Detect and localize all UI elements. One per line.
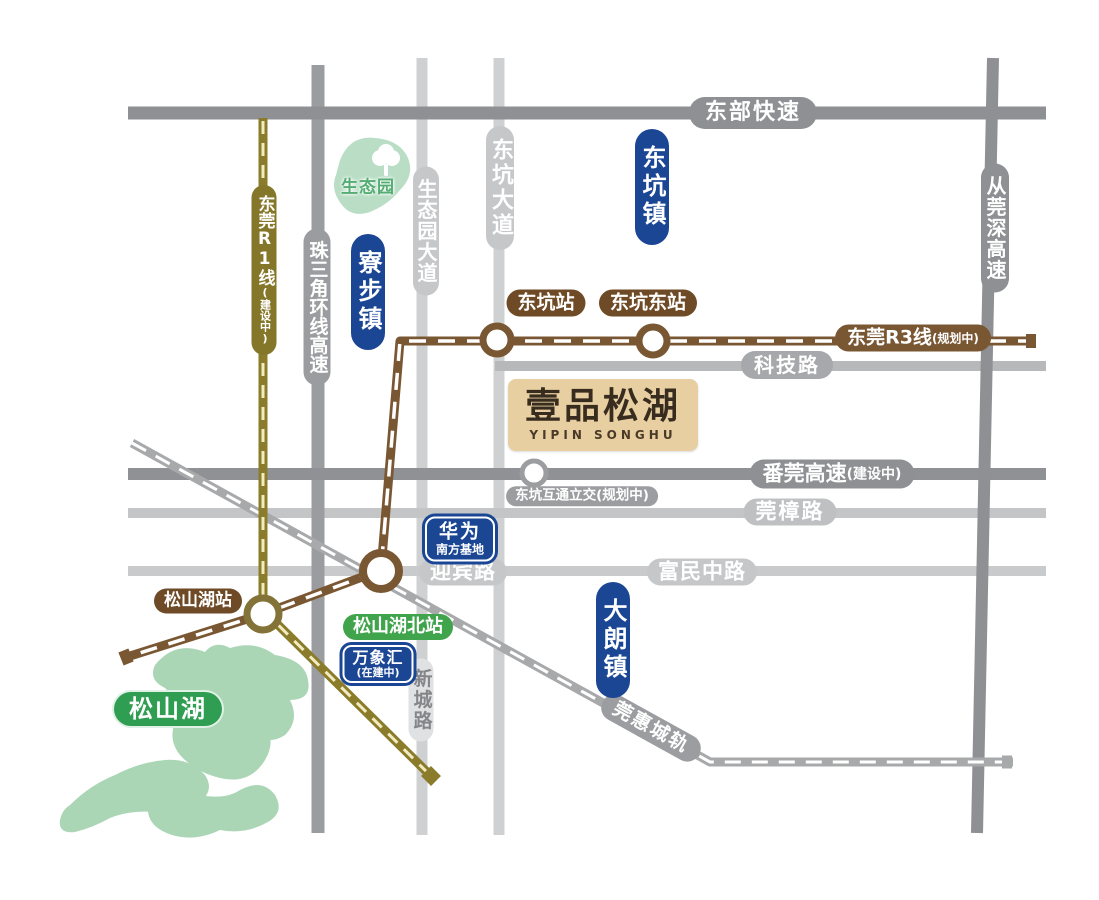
mixc-status: (在建中) <box>356 667 399 678</box>
project-title: 壹品松湖 <box>525 389 681 425</box>
rail-label-r3-line: 东莞R3线(规划中) <box>835 325 991 352</box>
station-badge-dongkeng-east: 东坑东站 <box>599 290 697 317</box>
poi-label-eco-park: 生态园 <box>341 180 395 197</box>
road-label-dongkeng-avenue: 东坑大道 <box>486 126 514 250</box>
r3-name: 东莞R3线 <box>847 329 932 348</box>
town-badge-dongkeng: 东坑镇 <box>635 129 669 245</box>
r3-junction-circle <box>363 553 399 589</box>
r3-status: (规划中) <box>932 332 979 344</box>
rail-label-r1-line: 东莞R1线(建设中) <box>252 185 277 355</box>
road-label-zhusanjiao-expressway: 珠三角环线高速 <box>304 229 331 386</box>
interchange-badge-dongkeng: 东坑互通立交(规划中) <box>506 486 658 506</box>
poi-badge-songshan-lake: 松山湖 <box>112 690 224 728</box>
huawei-subtitle: 南方基地 <box>436 544 484 556</box>
fanguan-name: 番莞高速 <box>763 464 847 485</box>
fanguan-status: (建设中) <box>847 467 902 481</box>
location-map: 东部快速 从莞深高速 珠三角环线高速 生态园大道 东坑大道 科技路 番莞高速(建… <box>0 0 1099 900</box>
r1-status: (建设中) <box>259 286 272 345</box>
road-label-fumin-middle-road: 富民中路 <box>647 559 757 586</box>
rail-r3-endcap-west <box>121 655 131 659</box>
poi-badge-mixc: 万象汇 (在建中) <box>342 645 413 683</box>
r1-name: 东莞R1线 <box>255 195 275 286</box>
station-badge-dongkeng: 东坑站 <box>506 290 585 317</box>
dongkeng-east-station-circle <box>639 327 667 355</box>
road-label-congguanshen-expressway: 从莞深高速 <box>981 164 1009 293</box>
songshanhu-station-circle <box>247 598 279 630</box>
road-label-yingbin-road: 迎宾路 <box>419 559 507 586</box>
road-label-shengtaiyuan-avenue: 生态园大道 <box>413 167 439 296</box>
road-label-fanguan-expressway: 番莞高速(建设中) <box>750 460 915 489</box>
station-badge-songshanhu-north: 松山湖北站 <box>343 614 453 640</box>
mixc-name: 万象汇 <box>352 650 403 666</box>
project-card-yipin-songhu: 壹品松湖 YIPIN SONGHU <box>508 379 698 451</box>
town-badge-dalang: 大朗镇 <box>596 582 630 698</box>
dongkeng-station-circle <box>483 326 511 354</box>
poi-badge-huawei-base: 华为 南方基地 <box>425 517 495 562</box>
project-subtitle: YIPIN SONGHU <box>529 429 676 441</box>
town-badge-liaobu: 寮步镇 <box>351 234 385 350</box>
eco-park-shape <box>334 138 410 214</box>
songshan-lake-shape <box>60 645 309 838</box>
huawei-name: 华为 <box>439 523 481 542</box>
road-label-keji-road: 科技路 <box>741 351 833 379</box>
road-label-guanzhang-road: 莞樟路 <box>744 499 837 526</box>
interchange-circle <box>522 461 546 485</box>
road-label-dongbu-expressway: 东部快速 <box>689 97 817 129</box>
rail-r1-endcap <box>426 771 436 781</box>
station-badge-songshanhu: 松山湖站 <box>154 589 242 614</box>
